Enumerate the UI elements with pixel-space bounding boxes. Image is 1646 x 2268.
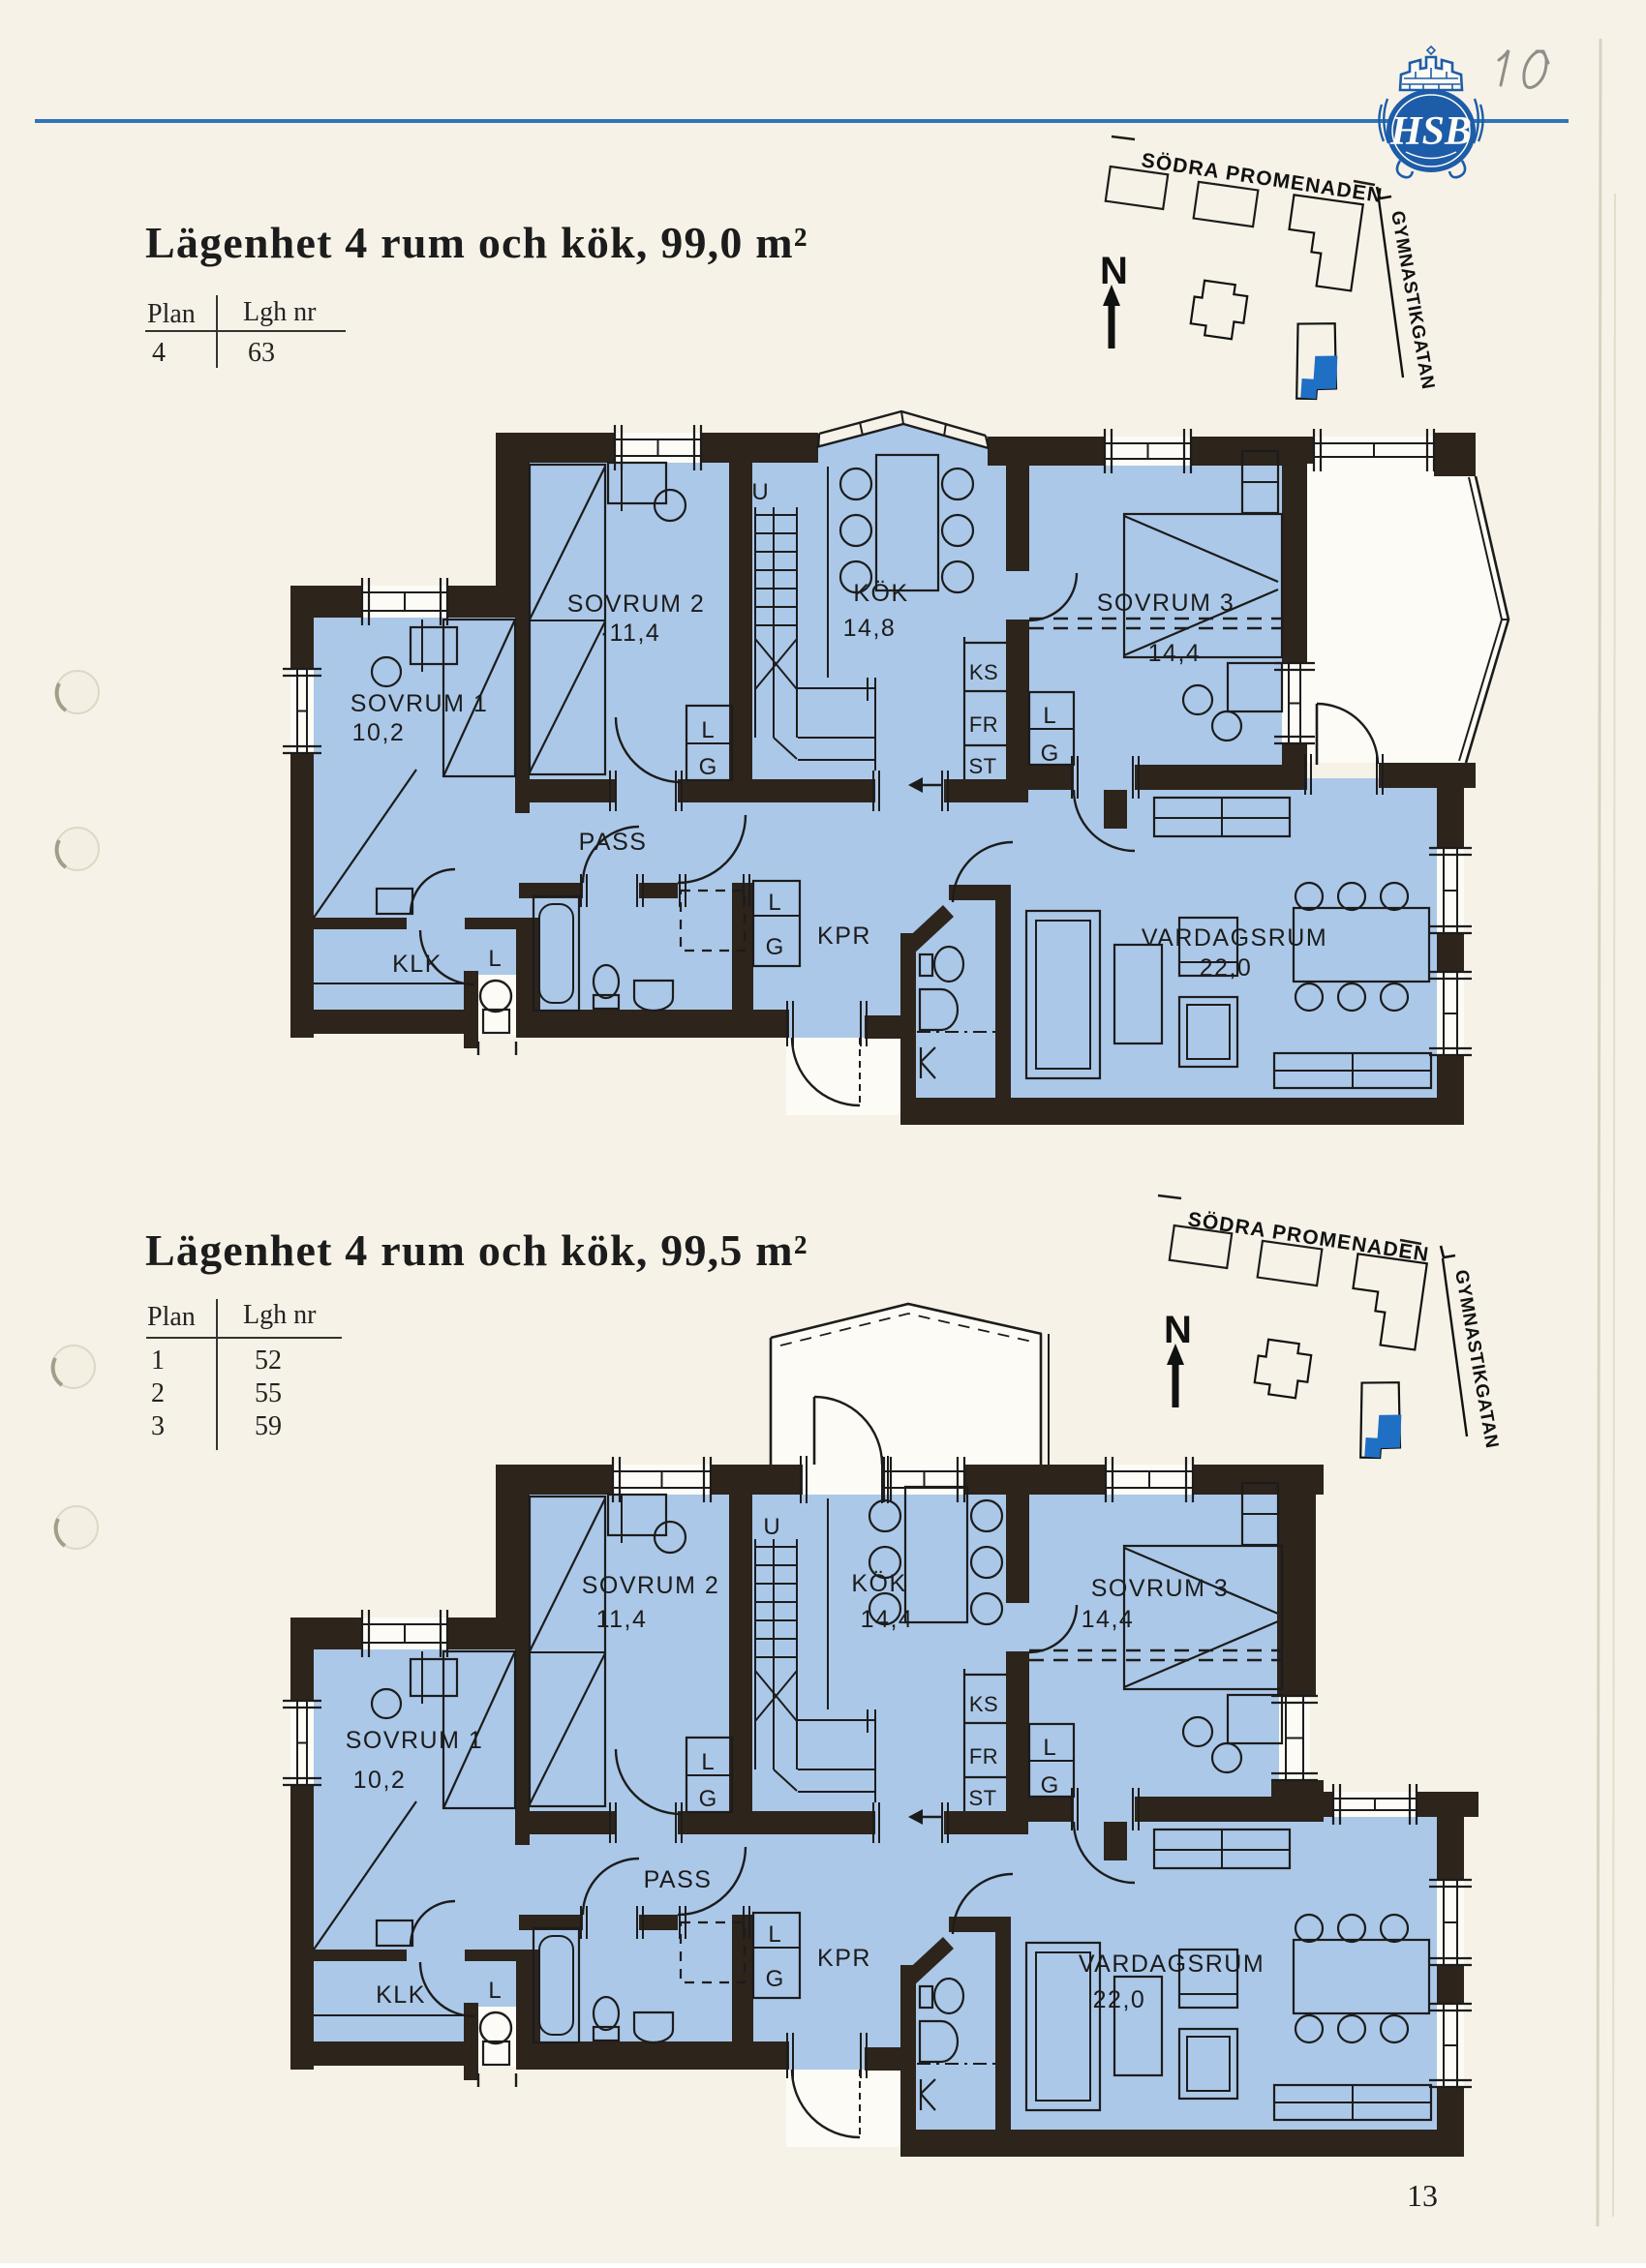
svg-text:L: L xyxy=(488,946,501,972)
svg-text:U: U xyxy=(751,479,768,505)
svg-text:·11,4: ·11,4 xyxy=(600,620,661,647)
svg-text:VARDAGSRUM: VARDAGSRUM xyxy=(1142,924,1327,952)
svg-text:13: 13 xyxy=(1407,2178,1438,2213)
svg-text:KLK: KLK xyxy=(376,1981,426,2009)
svg-text:FR: FR xyxy=(969,712,998,737)
svg-text:59: 59 xyxy=(255,1411,282,1441)
svg-text:KÖK: KÖK xyxy=(851,1570,906,1597)
svg-text:L: L xyxy=(768,890,780,916)
svg-text:ST: ST xyxy=(968,754,996,778)
svg-text:G: G xyxy=(699,754,717,780)
svg-text:Lägenhet 4 rum och kök, 99,0 m: Lägenhet 4 rum och kök, 99,0 m² xyxy=(145,218,808,267)
svg-text:10,2: 10,2 xyxy=(353,1767,407,1794)
svg-text:G: G xyxy=(1041,741,1059,767)
svg-text:Lägenhet 4 rum och kök, 99,5 m: Lägenhet 4 rum och kök, 99,5 m² xyxy=(145,1225,808,1275)
svg-text:1: 1 xyxy=(151,1346,165,1376)
svg-text:10,2: 10,2 xyxy=(352,719,406,746)
svg-text:KPR: KPR xyxy=(817,922,871,950)
svg-text:L: L xyxy=(1043,1735,1055,1761)
svg-text:KPR: KPR xyxy=(817,1945,871,1972)
svg-text:4: 4 xyxy=(152,338,166,368)
svg-text:L: L xyxy=(768,1921,780,1948)
svg-text:N: N xyxy=(1100,250,1128,292)
svg-text:L: L xyxy=(488,1978,501,2004)
svg-text:SOVRUM 1: SOVRUM 1 xyxy=(346,1727,484,1754)
svg-text:SOVRUM 3: SOVRUM 3 xyxy=(1097,590,1235,617)
svg-text:SOVRUM 1: SOVRUM 1 xyxy=(351,690,489,717)
svg-text:HSB: HSB xyxy=(1389,109,1472,154)
svg-text:SOVRUM 3: SOVRUM 3 xyxy=(1091,1575,1230,1602)
svg-text:3: 3 xyxy=(151,1411,165,1441)
svg-text:2: 2 xyxy=(151,1378,165,1408)
svg-text:L: L xyxy=(701,1749,714,1775)
svg-text:KLK: KLK xyxy=(392,951,442,978)
svg-text:14,4: 14,4 xyxy=(861,1606,914,1633)
svg-text:55: 55 xyxy=(255,1378,282,1408)
svg-text:Plan: Plan xyxy=(147,1302,196,1332)
svg-text:14,8: 14,8 xyxy=(843,615,897,642)
svg-text:KS: KS xyxy=(969,660,998,684)
svg-text:63: 63 xyxy=(248,338,275,368)
svg-text:G: G xyxy=(766,934,784,960)
svg-text:FR: FR xyxy=(969,1744,998,1769)
svg-text:L: L xyxy=(1043,703,1055,729)
svg-text:VARDAGSRUM: VARDAGSRUM xyxy=(1079,1950,1265,1978)
svg-text:SOVRUM 2: SOVRUM 2 xyxy=(582,1572,720,1599)
svg-text:U: U xyxy=(763,1514,779,1540)
svg-text:14,4: 14,4 xyxy=(1082,1606,1135,1633)
svg-text:ST: ST xyxy=(968,1786,996,1810)
svg-text:Lgh nr: Lgh nr xyxy=(243,1300,317,1330)
svg-text:11,4: 11,4 xyxy=(596,1606,648,1633)
svg-text:14,4: 14,4 xyxy=(1148,640,1202,667)
svg-text:G: G xyxy=(766,1966,784,1992)
svg-text:KS: KS xyxy=(969,1692,998,1716)
svg-text:Plan: Plan xyxy=(147,299,196,329)
svg-text:52: 52 xyxy=(255,1346,282,1376)
svg-text:22,0: 22,0 xyxy=(1200,954,1253,982)
svg-text:22,0: 22,0 xyxy=(1093,1986,1146,2013)
svg-text:KÖK: KÖK xyxy=(853,580,908,607)
svg-text:N: N xyxy=(1164,1309,1192,1351)
svg-text:PASS: PASS xyxy=(644,1866,713,1893)
svg-text:SOVRUM 2: SOVRUM 2 xyxy=(567,590,706,618)
svg-text:G: G xyxy=(699,1786,717,1812)
svg-text:PASS: PASS xyxy=(579,829,648,856)
svg-text:G: G xyxy=(1041,1772,1059,1799)
svg-text:Lgh nr: Lgh nr xyxy=(243,297,317,327)
svg-text:L: L xyxy=(701,717,714,743)
